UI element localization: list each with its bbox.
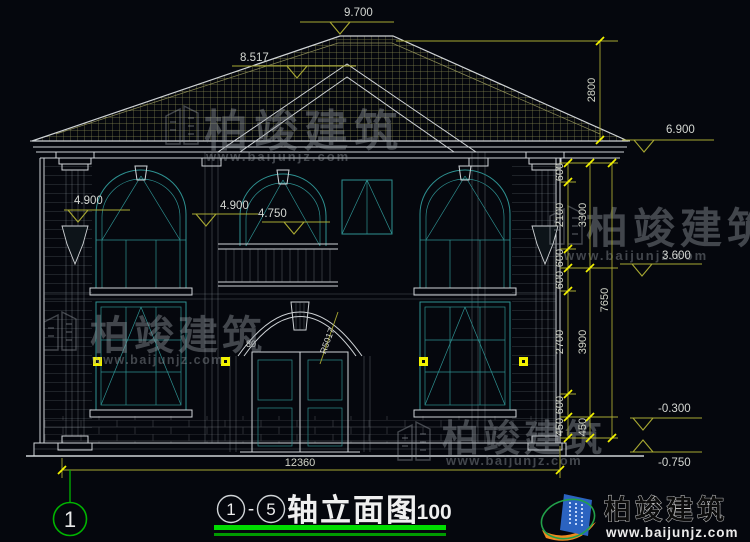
- svg-text:2100: 2100: [554, 203, 566, 227]
- svg-text:1: 1: [226, 500, 235, 519]
- svg-text:2700: 2700: [554, 330, 566, 354]
- level-triangle-icon: [634, 140, 654, 152]
- door-arc-radius-label: R5017: [318, 327, 336, 355]
- svg-text:6.900: 6.900: [666, 124, 695, 136]
- svg-text:2800: 2800: [586, 78, 598, 102]
- pilaster-inner-left: [202, 152, 221, 443]
- window-lower-right: [414, 302, 516, 417]
- level-triangle-icon: [633, 418, 653, 430]
- level-balcony-a: 4.900: [192, 200, 258, 226]
- watermark-url: www.baijunjz.com: [91, 353, 224, 367]
- pilaster-inner-right: [469, 152, 488, 443]
- window-upper-left: [90, 166, 192, 295]
- level-eave: 6.900: [622, 124, 714, 152]
- window-upper-center-right: [342, 180, 392, 234]
- cad-canvas: R5017 80 柏竣建筑 www.baijunjz.com 柏竣建筑 www.…: [0, 0, 750, 542]
- svg-text:450: 450: [554, 418, 566, 436]
- svg-text:-0.300: -0.300: [658, 403, 691, 415]
- svg-text:12360: 12360: [285, 457, 316, 469]
- svg-text:3900: 3900: [577, 330, 589, 354]
- watermark-url: www.baijunjz.com: [205, 149, 350, 164]
- level-triangle-icon: [632, 264, 652, 276]
- balcony-balustrade: [218, 244, 338, 286]
- svg-text:5: 5: [266, 500, 275, 519]
- svg-text:4.750: 4.750: [258, 208, 287, 220]
- logo-brand: 柏竣建筑: [604, 494, 728, 525]
- svg-text:600: 600: [554, 163, 566, 181]
- svg-text:-: -: [248, 499, 254, 520]
- svg-text:600: 600: [554, 396, 566, 414]
- svg-text:3.600: 3.600: [662, 250, 691, 262]
- title-underline-2: [214, 533, 446, 536]
- level-triangle-icon: [284, 222, 304, 234]
- level-minus-a: -0.300: [630, 403, 702, 430]
- level-ridge: 9.700: [300, 7, 394, 34]
- svg-text:450: 450: [577, 418, 589, 436]
- title-scale: 1:100: [398, 501, 452, 524]
- logo-url: www.baijunjz.com: [605, 525, 739, 540]
- title-underline: [214, 525, 446, 530]
- svg-text:600: 600: [554, 249, 566, 267]
- level-triangle-icon: [633, 440, 653, 452]
- svg-text:3300: 3300: [577, 203, 589, 227]
- watermark-brand: 柏竣建筑: [586, 205, 750, 252]
- axis-bubble: 1: [54, 470, 87, 536]
- svg-text:8.517: 8.517: [240, 52, 269, 64]
- svg-text:4.900: 4.900: [220, 200, 249, 212]
- level-triangle-icon: [330, 22, 350, 34]
- svg-text:-0.750: -0.750: [658, 457, 691, 469]
- level-minus-b: -0.750: [630, 440, 702, 469]
- svg-text:9.700: 9.700: [344, 7, 373, 19]
- svg-text:600: 600: [554, 271, 566, 289]
- brand-logo: 柏竣建筑 www.baijunjz.com: [537, 494, 739, 542]
- svg-text:4.900: 4.900: [74, 195, 103, 207]
- drawing-title: 1 - 5 轴立面图 1:100: [214, 493, 452, 536]
- dimension-right-chains: 600 2100 600 600 2700 600 450 3300 3900 …: [554, 159, 618, 442]
- watermark-url: www.baijunjz.com: [445, 453, 582, 468]
- svg-text:7650: 7650: [599, 288, 611, 312]
- watermark-brand: 柏竣建筑: [90, 314, 266, 358]
- level-triangle-icon: [196, 214, 216, 226]
- window-upper-right: [414, 166, 516, 295]
- svg-text:1: 1: [64, 507, 76, 532]
